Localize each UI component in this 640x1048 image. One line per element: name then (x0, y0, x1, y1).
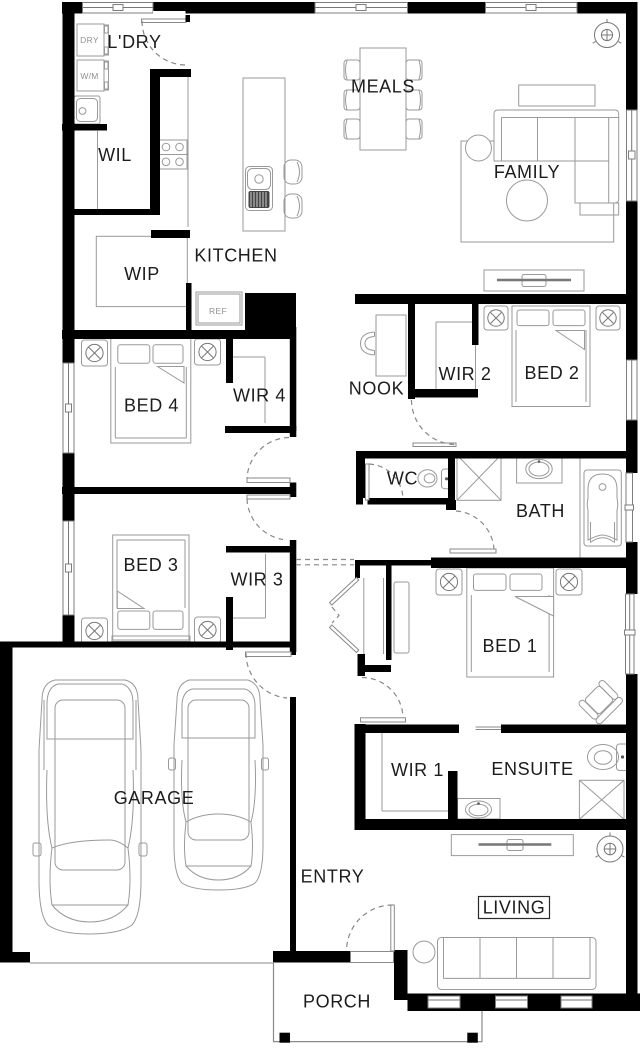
svg-text:WIR 3: WIR 3 (230, 570, 283, 590)
svg-text:REF: REF (209, 306, 227, 316)
svg-text:NOOK: NOOK (349, 379, 404, 399)
svg-text:WIR 1: WIR 1 (391, 760, 444, 780)
svg-text:WC: WC (387, 469, 418, 489)
svg-text:WIP: WIP (124, 264, 160, 284)
svg-text:FAMILY: FAMILY (494, 162, 560, 182)
svg-text:KITCHEN: KITCHEN (194, 246, 277, 266)
svg-text:PORCH: PORCH (303, 992, 371, 1012)
svg-text:BATH: BATH (516, 501, 565, 521)
svg-text:BED 1: BED 1 (482, 636, 537, 656)
svg-text:BED 3: BED 3 (123, 555, 178, 575)
svg-text:BED 2: BED 2 (524, 363, 579, 383)
svg-text:BED 4: BED 4 (124, 396, 179, 416)
svg-text:ENTRY: ENTRY (301, 867, 365, 887)
svg-text:WIL: WIL (98, 145, 132, 165)
svg-text:LIVING: LIVING (483, 898, 546, 918)
svg-text:GARAGE: GARAGE (114, 788, 195, 808)
svg-text:W/M: W/M (80, 71, 98, 81)
svg-text:ENSUITE: ENSUITE (491, 759, 573, 779)
svg-text:MEALS: MEALS (351, 77, 415, 97)
svg-text:WIR 2: WIR 2 (438, 364, 491, 384)
svg-text:DRY: DRY (80, 35, 99, 45)
svg-text:L'DRY: L'DRY (107, 32, 161, 52)
svg-text:WIR 4: WIR 4 (233, 386, 286, 406)
